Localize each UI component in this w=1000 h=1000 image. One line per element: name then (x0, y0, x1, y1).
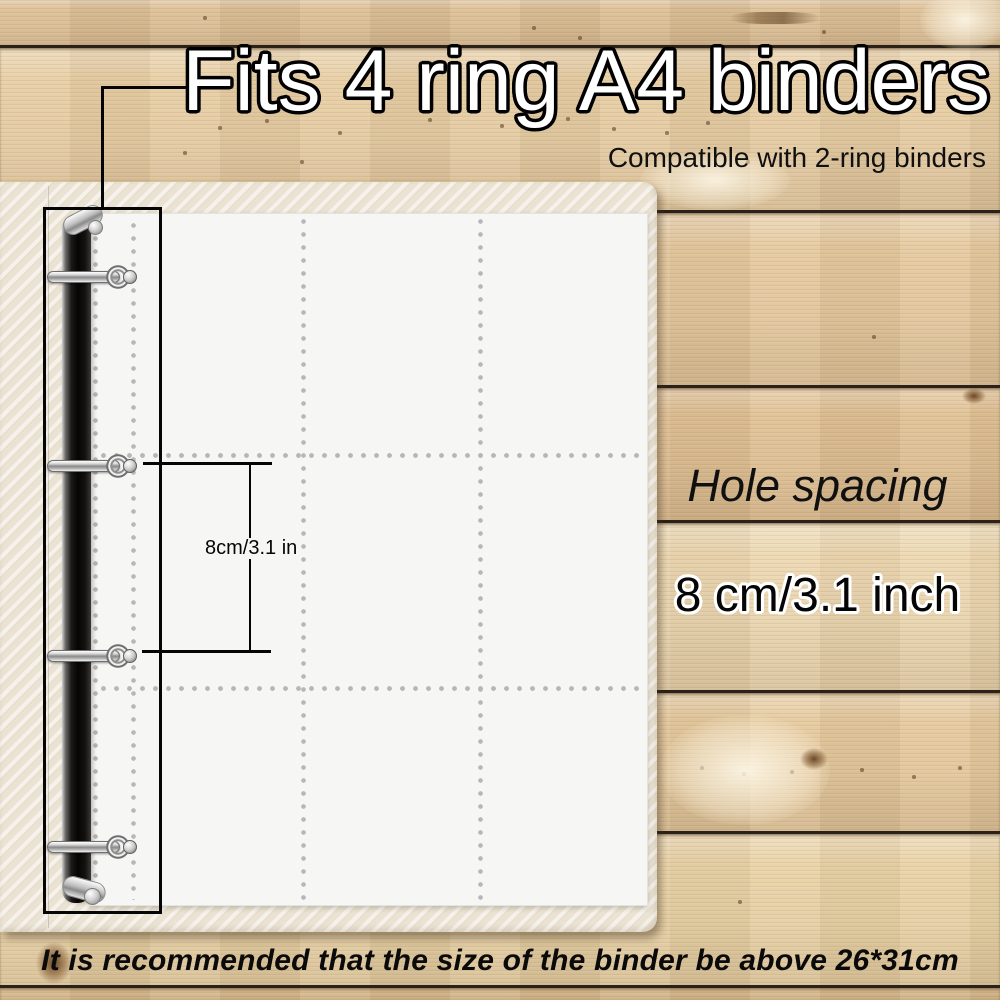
wood-knot (962, 388, 986, 404)
wood-speck (338, 131, 342, 135)
headline-subtitle: Compatible with 2-ring binders (608, 142, 986, 174)
wood-speck (203, 16, 207, 20)
dimension-tick-top (143, 462, 272, 465)
dimension-label: 8cm/3.1 in (203, 538, 299, 559)
wood-knot (730, 12, 820, 24)
wood-speck (532, 26, 536, 30)
wood-speck (958, 766, 962, 770)
wood-knot (660, 715, 830, 825)
wood-plank (0, 985, 1000, 1000)
pocket-seam-horizontal (97, 686, 644, 691)
callout-leader-vertical (101, 86, 104, 210)
wood-speck (872, 335, 876, 339)
callout-leader-horizontal (101, 86, 190, 89)
wood-speck (183, 151, 187, 155)
wood-speck (912, 775, 916, 779)
callout-box (43, 207, 162, 914)
product-infographic-canvas: 8cm/3.1 in Fits 4 ring A4 binders Compat… (0, 0, 1000, 1000)
pocket-seam-vertical (478, 215, 483, 904)
hole-spacing-value: 8 cm/3.1 inch (645, 568, 990, 623)
pocket-seam-vertical (301, 215, 306, 904)
wood-knot (800, 748, 828, 770)
hole-spacing-heading: Hole spacing (650, 460, 985, 512)
wood-speck (665, 131, 669, 135)
headline-title: Fits 4 ring A4 binders (182, 38, 990, 124)
wood-speck (860, 768, 864, 772)
pocket-page (89, 213, 648, 906)
pocket-seam-horizontal (97, 453, 644, 458)
wood-speck (300, 160, 304, 164)
footer-recommendation: It is recommended that the size of the b… (0, 944, 1000, 978)
dimension-tick-bottom (142, 650, 271, 653)
wood-speck (738, 900, 742, 904)
